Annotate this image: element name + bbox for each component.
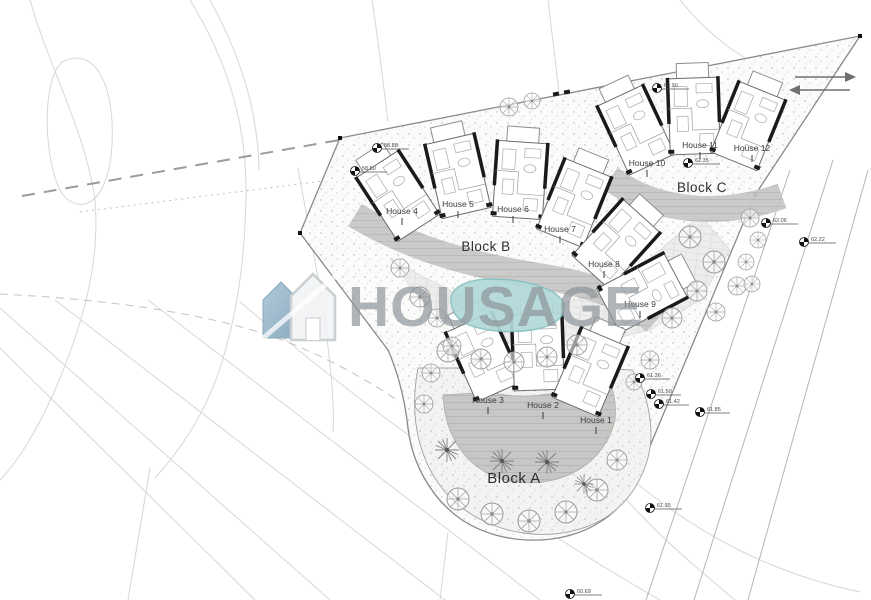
house-label-5: House 5 bbox=[442, 199, 474, 209]
house-label-12: House 12 bbox=[734, 143, 771, 153]
svg-text:62.35: 62.35 bbox=[695, 158, 709, 164]
house-label-7: House 7 bbox=[544, 224, 576, 234]
block-a-label: Block A bbox=[487, 470, 541, 487]
block-c-label: Block C bbox=[677, 180, 727, 195]
svg-text:61.42: 61.42 bbox=[666, 399, 680, 405]
house-label-3: House 3 bbox=[472, 395, 504, 405]
house-label-11: House 11 bbox=[682, 140, 718, 150]
svg-text:58.88: 58.88 bbox=[384, 143, 398, 149]
house-label-1: House 1 bbox=[580, 415, 612, 425]
watermark-text: HOUSAGE bbox=[348, 275, 643, 339]
svg-text:58.50: 58.50 bbox=[362, 166, 376, 172]
site-plan-canvas: House 1 House 2 House 3 House 4 House 5 … bbox=[0, 0, 871, 600]
svg-text:62.22: 62.22 bbox=[811, 237, 825, 243]
house-label-4: House 4 bbox=[386, 206, 418, 216]
house-label-2: House 2 bbox=[527, 400, 559, 410]
svg-text:61.35: 61.35 bbox=[657, 503, 671, 509]
svg-text:60.69: 60.69 bbox=[577, 589, 591, 595]
svg-text:62.06: 62.06 bbox=[773, 218, 787, 224]
svg-text:62.90: 62.90 bbox=[664, 83, 678, 89]
housage-watermark: HOUSAGE bbox=[255, 268, 643, 345]
house-label-8: House 8 bbox=[588, 259, 620, 269]
house-label-6: House 6 bbox=[497, 204, 529, 214]
block-b-label: Block B bbox=[461, 239, 510, 254]
svg-text:61.85: 61.85 bbox=[707, 407, 721, 413]
svg-text:61.36: 61.36 bbox=[647, 373, 661, 379]
house-label-10: House 10 bbox=[629, 158, 666, 168]
svg-text:61.50: 61.50 bbox=[658, 389, 672, 395]
